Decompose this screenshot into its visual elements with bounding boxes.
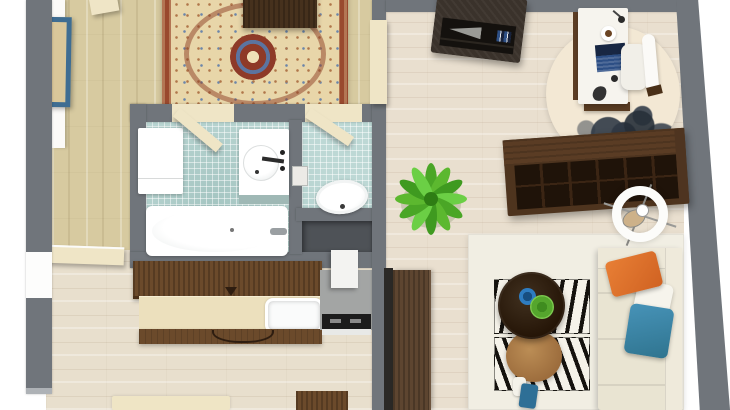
speaker-wedge [449, 23, 482, 39]
floorplan-scene [0, 0, 730, 410]
blue-vase[interactable] [518, 383, 538, 409]
living-room-area [0, 0, 730, 410]
computer-mouse[interactable] [611, 75, 618, 82]
pillow-blue[interactable] [623, 303, 674, 359]
lamp-head [618, 16, 625, 23]
coffee-mug[interactable] [601, 26, 616, 41]
sideboard-tv-edge [384, 268, 393, 410]
media-cabinet-front [439, 18, 516, 55]
desk-lamp[interactable] [612, 10, 626, 24]
coffee [605, 30, 612, 37]
media-spines [496, 30, 511, 43]
potted-plant[interactable] [392, 160, 470, 238]
ring-floor-lamp[interactable] [602, 180, 678, 250]
media-cabinet[interactable] [430, 0, 527, 63]
lamp-bulb [636, 204, 649, 217]
sideboard[interactable] [393, 270, 431, 410]
bowl-green[interactable] [530, 295, 554, 319]
